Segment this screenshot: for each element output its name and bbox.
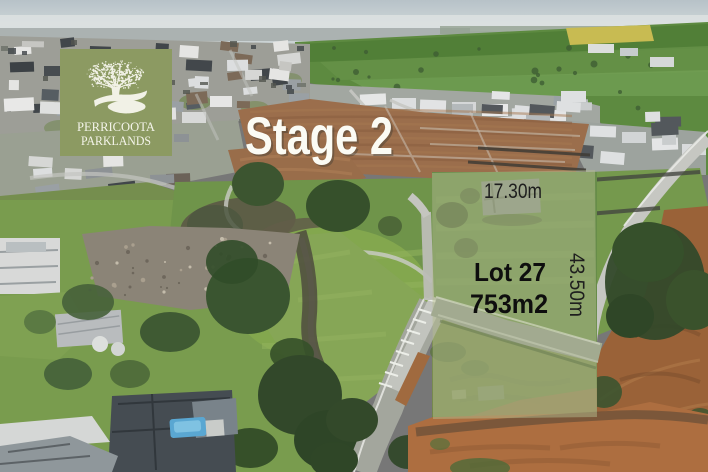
svg-text:PARKLANDS: PARKLANDS [81, 133, 151, 148]
svg-text:PERRICOOTA: PERRICOOTA [77, 119, 156, 134]
svg-text:753m2: 753m2 [470, 289, 548, 319]
svg-text:Lot 27: Lot 27 [474, 257, 546, 287]
svg-text:Stage 2: Stage 2 [245, 107, 393, 166]
svg-text:17.30m: 17.30m [484, 180, 542, 203]
svg-text:43.50m: 43.50m [565, 253, 588, 317]
